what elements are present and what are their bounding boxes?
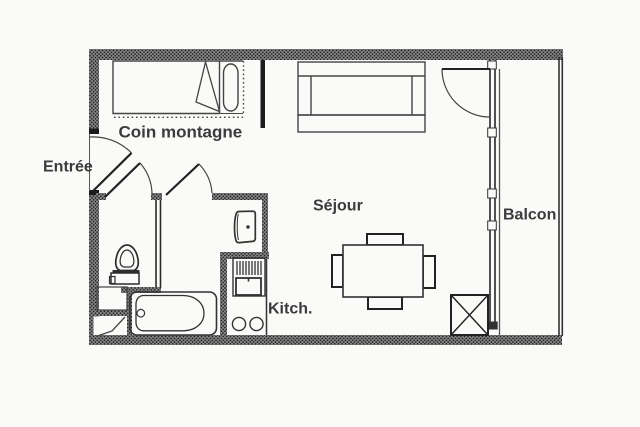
svg-text:Coin montagne: Coin montagne [119,123,243,142]
svg-text:Séjour: Séjour [313,198,363,215]
svg-text:Entrée: Entrée [43,159,93,176]
svg-text:Kitch.: Kitch. [268,301,312,318]
svg-text:Balcon: Balcon [503,207,556,224]
